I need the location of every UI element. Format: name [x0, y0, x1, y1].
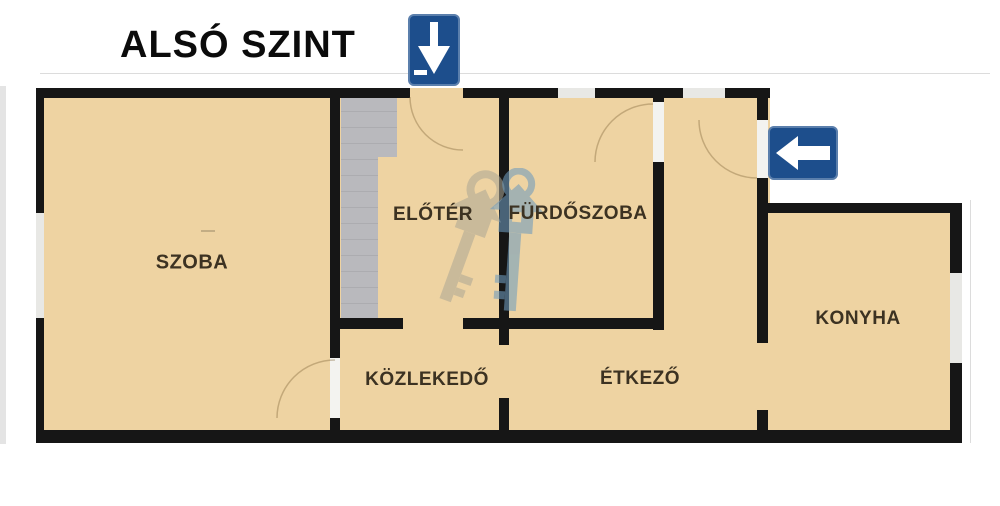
- wall-segment: [595, 88, 683, 98]
- room-label-eloter: ELŐTÉR: [393, 204, 473, 226]
- wall-segment: [653, 162, 664, 330]
- window-opening: [558, 88, 595, 98]
- room-label-etkezo: ÉTKEZŐ: [600, 368, 680, 390]
- wall-segment: [950, 203, 962, 273]
- floor-plan-canvas: ALSÓ SZINT SZOBA ELŐTÉR FÜRDŐSZOBA KONYH…: [0, 0, 1000, 506]
- tiny-dimension-mark: [201, 230, 215, 232]
- room-label-kozlekedo: KÖZLEKEDŐ: [365, 369, 489, 391]
- door-opening-szoba: [330, 358, 340, 418]
- wall-segment: [950, 363, 962, 443]
- wall-segment: [36, 88, 44, 213]
- window-opening: [950, 273, 962, 363]
- door-opening-entry: [757, 120, 768, 178]
- wall-segment: [653, 88, 664, 102]
- left-arrow-icon: [768, 126, 838, 180]
- door-opening-bathroom: [653, 102, 664, 162]
- wall-segment: [757, 410, 768, 430]
- room-label-konyha: KONYHA: [815, 308, 900, 330]
- wall-segment: [757, 203, 962, 213]
- right-dimension-line: [970, 200, 971, 443]
- door-opening-top: [410, 88, 463, 98]
- staircase-landing: [378, 95, 397, 157]
- left-arrow-sign: [768, 126, 838, 180]
- wall-segment: [499, 398, 509, 443]
- left-edge-strip: [0, 86, 6, 444]
- wall-segment: [36, 318, 44, 443]
- wall-segment: [333, 318, 403, 329]
- wall-segment: [463, 88, 558, 98]
- top-dimension-line: [40, 73, 990, 74]
- page-title: ALSÓ SZINT: [120, 24, 356, 67]
- down-arrow-sign: [408, 14, 460, 86]
- wall-segment: [757, 88, 768, 120]
- window-opening: [36, 213, 44, 318]
- window-opening: [683, 88, 725, 98]
- room-label-furdoszoba: FÜRDŐSZOBA: [508, 203, 647, 225]
- keys-house-watermark-logo: [420, 168, 575, 328]
- down-arrow-icon: [408, 14, 460, 86]
- room-label-szoba: SZOBA: [156, 252, 229, 275]
- wall-segment: [330, 418, 340, 443]
- staircase: [341, 95, 378, 318]
- wall-segment: [36, 88, 410, 98]
